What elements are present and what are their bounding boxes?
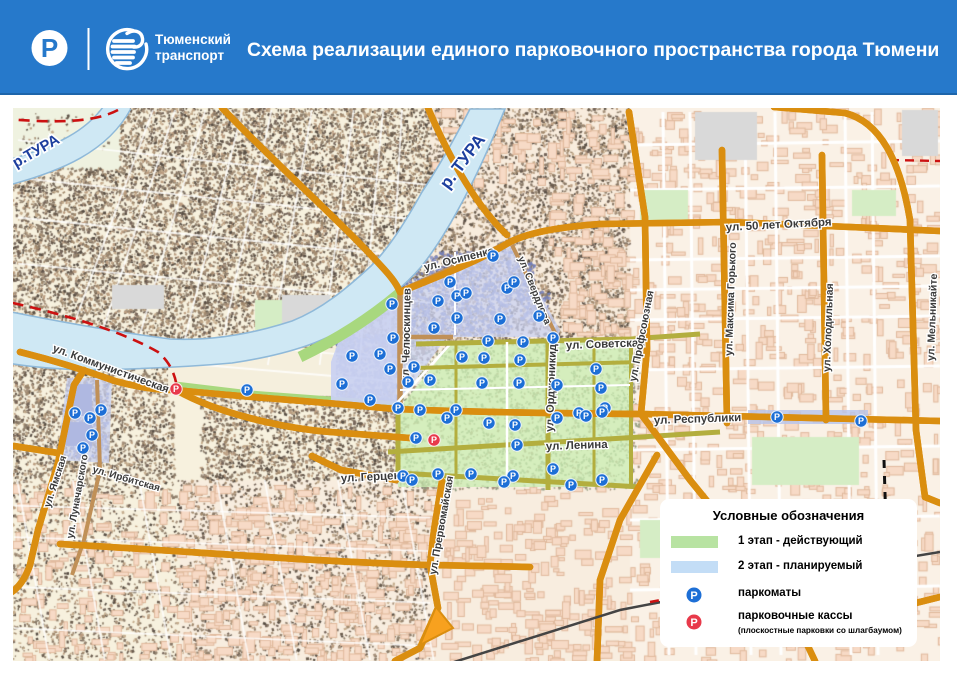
svg-text:P: P xyxy=(774,412,780,422)
svg-text:P: P xyxy=(367,395,373,405)
svg-text:ул. Ирбитская: ул. Ирбитская xyxy=(91,463,161,494)
svg-text:ул. Ленина: ул. Ленина xyxy=(546,439,609,453)
svg-text:P: P xyxy=(435,469,441,479)
svg-text:P: P xyxy=(98,405,104,415)
svg-text:P: P xyxy=(536,311,542,321)
svg-text:P: P xyxy=(349,351,355,361)
svg-text:P: P xyxy=(554,380,560,390)
svg-text:P: P xyxy=(405,377,411,387)
svg-text:P: P xyxy=(599,407,605,417)
svg-text:P: P xyxy=(463,288,469,298)
svg-text:P: P xyxy=(514,440,520,450)
svg-text:P: P xyxy=(87,413,93,423)
svg-text:P: P xyxy=(413,433,419,443)
svg-text:P: P xyxy=(501,477,507,487)
svg-text:P: P xyxy=(479,378,485,388)
svg-text:P: P xyxy=(454,291,460,301)
svg-text:P: P xyxy=(568,480,574,490)
svg-text:P: P xyxy=(80,443,86,453)
svg-text:P: P xyxy=(395,403,401,413)
svg-text:ул. Мельникайте: ул. Мельникайте xyxy=(925,273,940,361)
svg-text:Тюменский: Тюменский xyxy=(155,32,231,47)
svg-text:P: P xyxy=(89,430,95,440)
svg-text:P: P xyxy=(690,590,697,602)
svg-text:P: P xyxy=(244,385,250,395)
svg-text:P: P xyxy=(599,475,605,485)
svg-text:ул. Максима Горького: ул. Максима Горького xyxy=(723,242,739,356)
svg-text:P: P xyxy=(520,337,526,347)
svg-text:P: P xyxy=(417,405,423,415)
svg-text:P: P xyxy=(444,413,450,423)
svg-text:P: P xyxy=(598,383,604,393)
svg-text:P: P xyxy=(516,378,522,388)
svg-text:P: P xyxy=(389,299,395,309)
svg-text:P: P xyxy=(858,416,864,426)
svg-text:P: P xyxy=(490,251,496,261)
svg-text:Схема реализации единого парко: Схема реализации единого парковочного пр… xyxy=(247,39,939,61)
svg-text:P: P xyxy=(339,379,345,389)
svg-text:P: P xyxy=(427,375,433,385)
svg-text:P: P xyxy=(72,408,78,418)
svg-text:P: P xyxy=(690,617,697,629)
svg-text:P: P xyxy=(409,475,415,485)
svg-text:P: P xyxy=(454,313,460,323)
svg-text:ул. Холодильная: ул. Холодильная xyxy=(821,283,836,372)
svg-text:P: P xyxy=(431,323,437,333)
svg-text:P: P xyxy=(390,333,396,343)
svg-text:P: P xyxy=(554,413,560,423)
svg-text:P: P xyxy=(411,362,417,372)
svg-text:P: P xyxy=(486,418,492,428)
svg-text:P: P xyxy=(468,469,474,479)
svg-text:P: P xyxy=(583,411,589,421)
svg-text:P: P xyxy=(511,277,517,287)
svg-text:транспорт: транспорт xyxy=(155,48,224,63)
svg-text:P: P xyxy=(485,336,491,346)
svg-text:P: P xyxy=(512,420,518,430)
svg-text:P: P xyxy=(41,33,58,63)
svg-text:P: P xyxy=(459,352,465,362)
svg-text:P: P xyxy=(387,364,393,374)
svg-text:P: P xyxy=(173,384,179,394)
svg-text:P: P xyxy=(593,364,599,374)
svg-text:P: P xyxy=(453,405,459,415)
svg-text:P: P xyxy=(431,435,437,445)
svg-text:P: P xyxy=(550,464,556,474)
svg-text:P: P xyxy=(517,355,523,365)
svg-text:P: P xyxy=(435,296,441,306)
svg-text:P: P xyxy=(550,333,556,343)
svg-text:P: P xyxy=(497,314,503,324)
svg-text:P: P xyxy=(510,471,516,481)
svg-text:ул. 50 лет Октября: ул. 50 лет Октября xyxy=(726,216,832,234)
svg-text:P: P xyxy=(481,353,487,363)
svg-text:P: P xyxy=(447,277,453,287)
svg-text:P: P xyxy=(377,349,383,359)
svg-text:ул. Ямская: ул. Ямская xyxy=(42,454,69,509)
svg-text:P: P xyxy=(400,471,406,481)
